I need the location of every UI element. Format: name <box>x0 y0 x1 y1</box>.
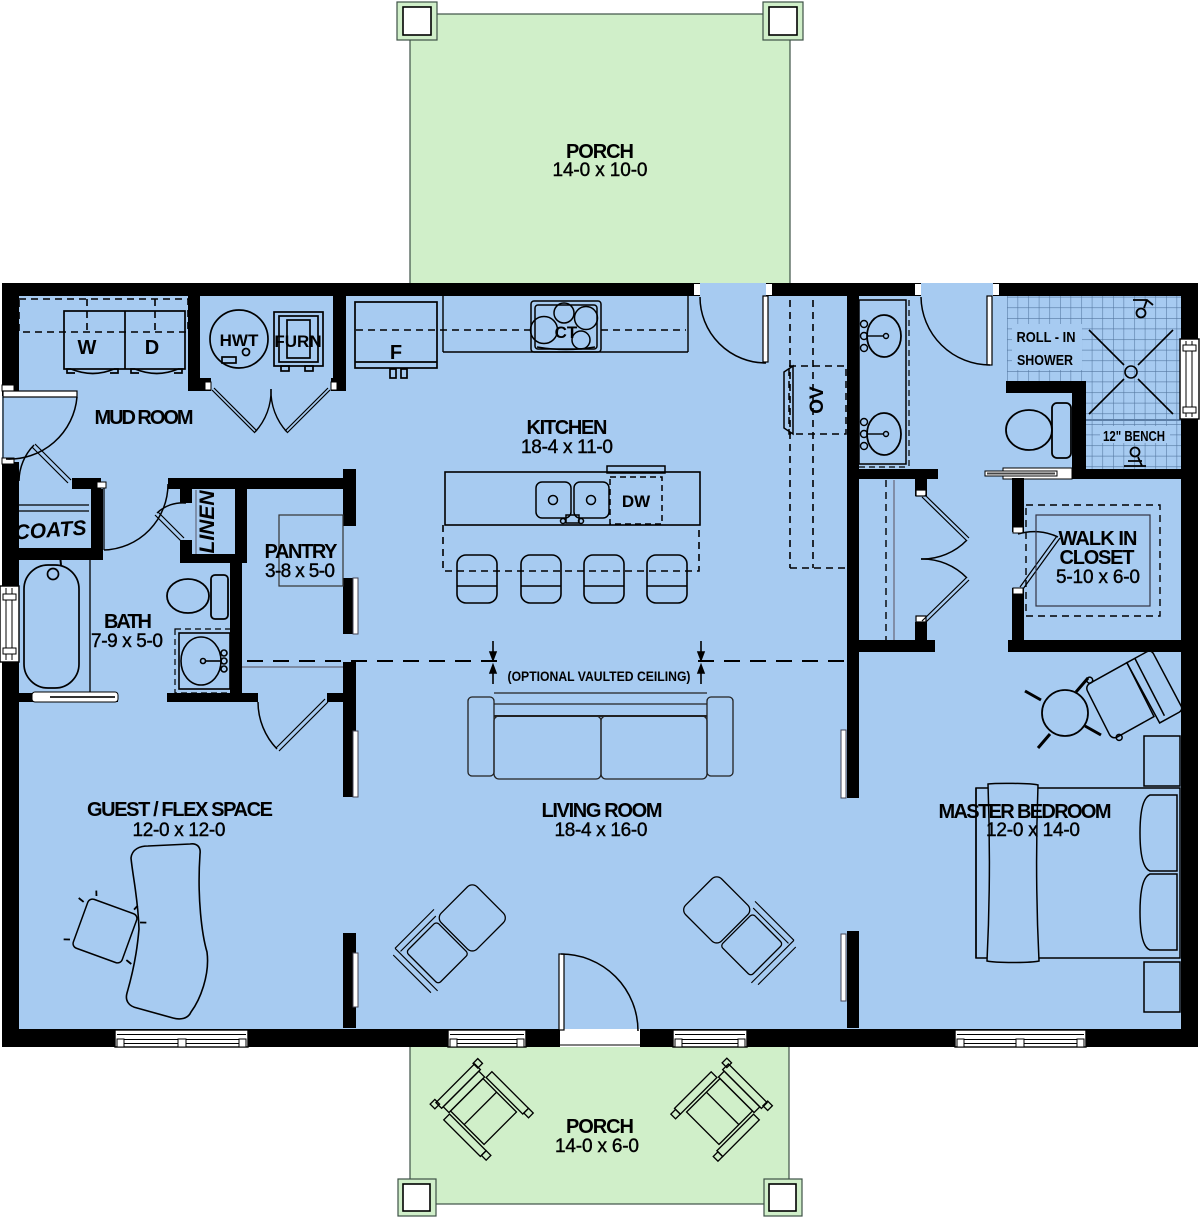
svg-text:14-0 x 10-0: 14-0 x 10-0 <box>553 160 648 181</box>
svg-text:CLOSET: CLOSET <box>1060 547 1135 569</box>
svg-text:FURN: FURN <box>274 332 321 351</box>
svg-text:DW: DW <box>622 492 651 511</box>
svg-text:LIVING ROOM: LIVING ROOM <box>542 800 663 822</box>
svg-text:HWT: HWT <box>220 331 259 350</box>
svg-text:PORCH: PORCH <box>566 1116 634 1138</box>
svg-text:(OPTIONAL VAULTED CEILING): (OPTIONAL VAULTED CEILING) <box>508 668 691 684</box>
svg-text:PANTRY: PANTRY <box>265 541 339 563</box>
svg-text:KITCHEN: KITCHEN <box>527 417 608 439</box>
svg-text:OV: OV <box>807 386 828 414</box>
svg-text:3-8 x 5-0: 3-8 x 5-0 <box>265 561 335 582</box>
svg-text:D: D <box>145 337 159 359</box>
svg-text:MUD ROOM: MUD ROOM <box>95 407 194 429</box>
svg-text:18-4 x 11-0: 18-4 x 11-0 <box>521 437 613 458</box>
svg-text:12-0 x 14-0: 12-0 x 14-0 <box>986 820 1080 841</box>
svg-text:CT: CT <box>555 323 578 342</box>
svg-text:12-0 x 12-0: 12-0 x 12-0 <box>133 820 226 841</box>
svg-text:7-9 x 5-0: 7-9 x 5-0 <box>91 631 163 652</box>
svg-text:12" BENCH: 12" BENCH <box>1103 428 1165 445</box>
svg-text:LINEN: LINEN <box>196 490 219 554</box>
svg-text:GUEST / FLEX SPACE: GUEST / FLEX SPACE <box>87 799 273 821</box>
svg-text:14-0 x 6-0: 14-0 x 6-0 <box>555 1136 639 1157</box>
svg-text:SHOWER: SHOWER <box>1017 352 1073 369</box>
svg-text:18-4 x 16-0: 18-4 x 16-0 <box>555 820 648 841</box>
svg-text:F: F <box>390 342 402 364</box>
svg-text:ROLL - IN: ROLL - IN <box>1017 329 1076 346</box>
svg-text:BATH: BATH <box>104 611 152 633</box>
svg-text:W: W <box>78 337 97 359</box>
svg-text:5-10 x 6-0: 5-10 x 6-0 <box>1056 567 1140 588</box>
